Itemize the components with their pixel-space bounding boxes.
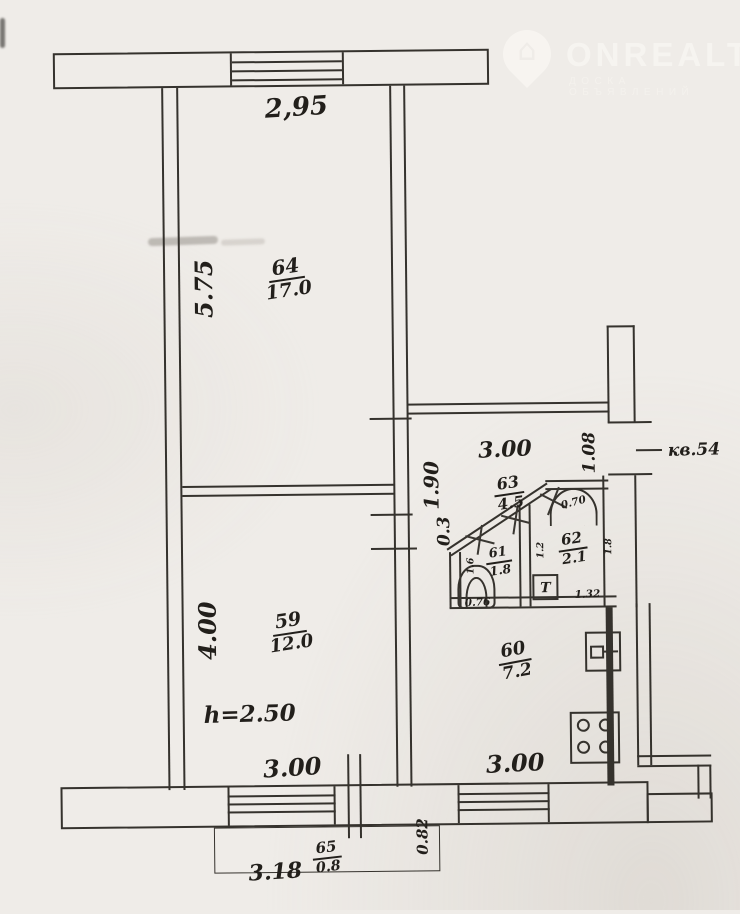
dim-hall-small: 0.3 <box>436 516 453 546</box>
window-kitchen-jamb <box>547 784 550 822</box>
entry-opening-tick <box>608 421 652 424</box>
wall-hall-top <box>407 401 609 414</box>
water-tank-letter: T <box>540 581 551 595</box>
ceiling-height-note: h=2.50 <box>203 701 296 727</box>
dim-hall-side: 1.08 <box>581 432 598 474</box>
window-kitchen-jamb <box>457 785 460 823</box>
wall-room-divider <box>182 484 394 497</box>
dim-bedroom-height: 4.00 <box>196 601 221 660</box>
stove-burner <box>599 718 612 731</box>
dim-wc-left: 1.2 <box>536 542 546 559</box>
window-bedroom-jamb <box>333 786 336 824</box>
stove-burner <box>599 740 612 753</box>
wall-left <box>161 88 185 790</box>
dim-wc-right: 1.8 <box>604 538 614 555</box>
floor-plan: 2,95 5.75 64 17.0 1.90 0.3 3.00 1.08 кв.… <box>0 0 740 914</box>
dimension-tick <box>370 418 412 421</box>
stove-burner <box>577 719 590 732</box>
dim-bath-width: 0.76 <box>465 597 491 609</box>
wall-bottom <box>60 781 648 829</box>
dim-balcony-depth: 0.82 <box>415 818 430 855</box>
dim-hall-width: 3.00 <box>478 437 533 461</box>
dimension-tick <box>371 514 413 517</box>
balcony-label: 65 0.8 <box>311 839 344 877</box>
dim-kitchen-width: 3.00 <box>485 750 544 777</box>
hall-label: 63 4.5 <box>492 473 527 514</box>
bedroom-label: 59 12.0 <box>265 608 315 657</box>
kitchen-sink-basin <box>590 646 604 659</box>
apartment-number-label: кв.54 <box>668 441 721 459</box>
stove <box>570 711 621 764</box>
dim-bedroom-width: 3.00 <box>262 754 322 782</box>
kitchen-label: 60 7.2 <box>495 638 535 684</box>
window-top-jamb <box>342 52 345 84</box>
apartment-leader-line <box>636 449 662 451</box>
dim-top-width: 2,95 <box>264 93 329 123</box>
wall-middle-vertical <box>389 86 412 787</box>
stove-burner <box>577 741 590 754</box>
dim-hall-depth: 1.90 <box>421 461 442 510</box>
wall-bottom-step <box>647 792 713 823</box>
kitchen-sink-tap <box>603 650 618 652</box>
wall-shaft-upper <box>607 325 636 422</box>
dim-bath-depth: 1.6 <box>466 558 476 575</box>
bathroom-label: 61 1.8 <box>484 545 514 579</box>
dimension-tick <box>371 548 417 551</box>
living-room-label: 64 17.0 <box>261 253 313 304</box>
wall-outer-right <box>636 603 653 765</box>
wc-label: 62 2.1 <box>556 530 590 569</box>
dim-living-height: 5.75 <box>192 259 217 318</box>
dim-balcony-width: 3.18 <box>248 859 303 884</box>
window-bedroom-jamb <box>227 787 230 825</box>
dim-wc-bottom: 1.32 <box>574 589 600 601</box>
scanned-floor-plan-page: ⌂ ONREALT ДОСКА ОБЪЯВЛЕНИЙ <box>0 0 740 910</box>
